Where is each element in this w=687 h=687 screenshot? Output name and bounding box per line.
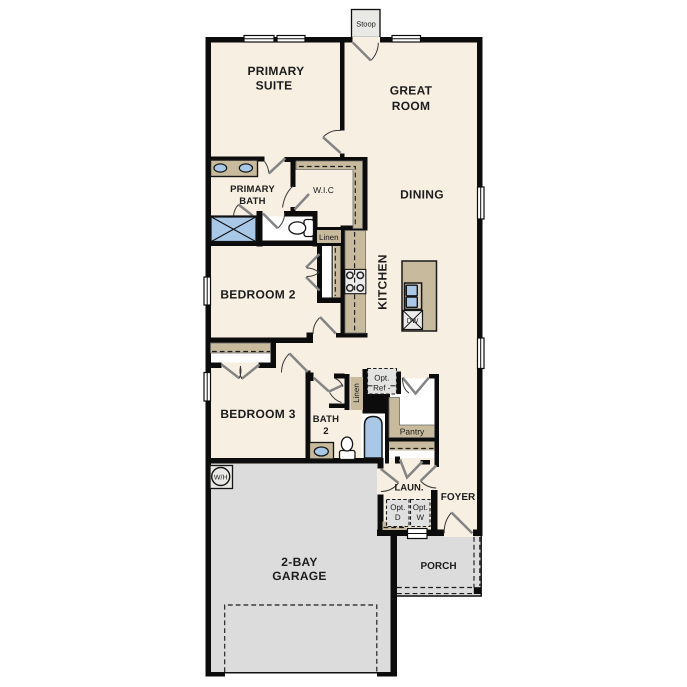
- svg-text:BATH: BATH: [313, 414, 339, 425]
- svg-text:Opt.: Opt.: [374, 374, 389, 383]
- svg-text:Linen: Linen: [319, 233, 339, 242]
- svg-text:GREAT: GREAT: [390, 84, 433, 98]
- svg-text:PRIMARY: PRIMARY: [248, 64, 305, 78]
- svg-text:Pantry: Pantry: [400, 427, 425, 437]
- svg-text:2-BAY: 2-BAY: [281, 555, 317, 569]
- svg-text:W.I.C: W.I.C: [313, 185, 334, 195]
- svg-text:Opt.: Opt.: [413, 503, 428, 512]
- svg-text:FOYER: FOYER: [441, 492, 476, 503]
- svg-text:Stoop: Stoop: [356, 20, 376, 29]
- svg-text:PRIMARY: PRIMARY: [230, 184, 275, 195]
- svg-text:W: W: [417, 513, 425, 522]
- svg-text:BEDROOM 3: BEDROOM 3: [220, 407, 295, 421]
- svg-text:W/H: W/H: [214, 473, 228, 481]
- svg-text:BATH: BATH: [239, 196, 265, 207]
- svg-text:GARAGE: GARAGE: [272, 569, 326, 583]
- svg-text:KITCHEN: KITCHEN: [375, 254, 389, 309]
- svg-text:SUITE: SUITE: [256, 79, 293, 93]
- svg-text:Ref -: Ref -: [373, 384, 391, 393]
- svg-text:D: D: [395, 513, 401, 522]
- svg-text:Linen: Linen: [352, 383, 361, 403]
- svg-text:2: 2: [323, 426, 328, 437]
- svg-text:BEDROOM 2: BEDROOM 2: [220, 288, 295, 302]
- svg-text:PORCH: PORCH: [420, 561, 456, 572]
- svg-text:LAUN.: LAUN.: [394, 483, 423, 494]
- svg-text:Opt.: Opt.: [390, 503, 405, 512]
- svg-text:DW: DW: [407, 318, 419, 325]
- svg-text:ROOM: ROOM: [392, 99, 431, 113]
- svg-text:DINING: DINING: [400, 188, 444, 202]
